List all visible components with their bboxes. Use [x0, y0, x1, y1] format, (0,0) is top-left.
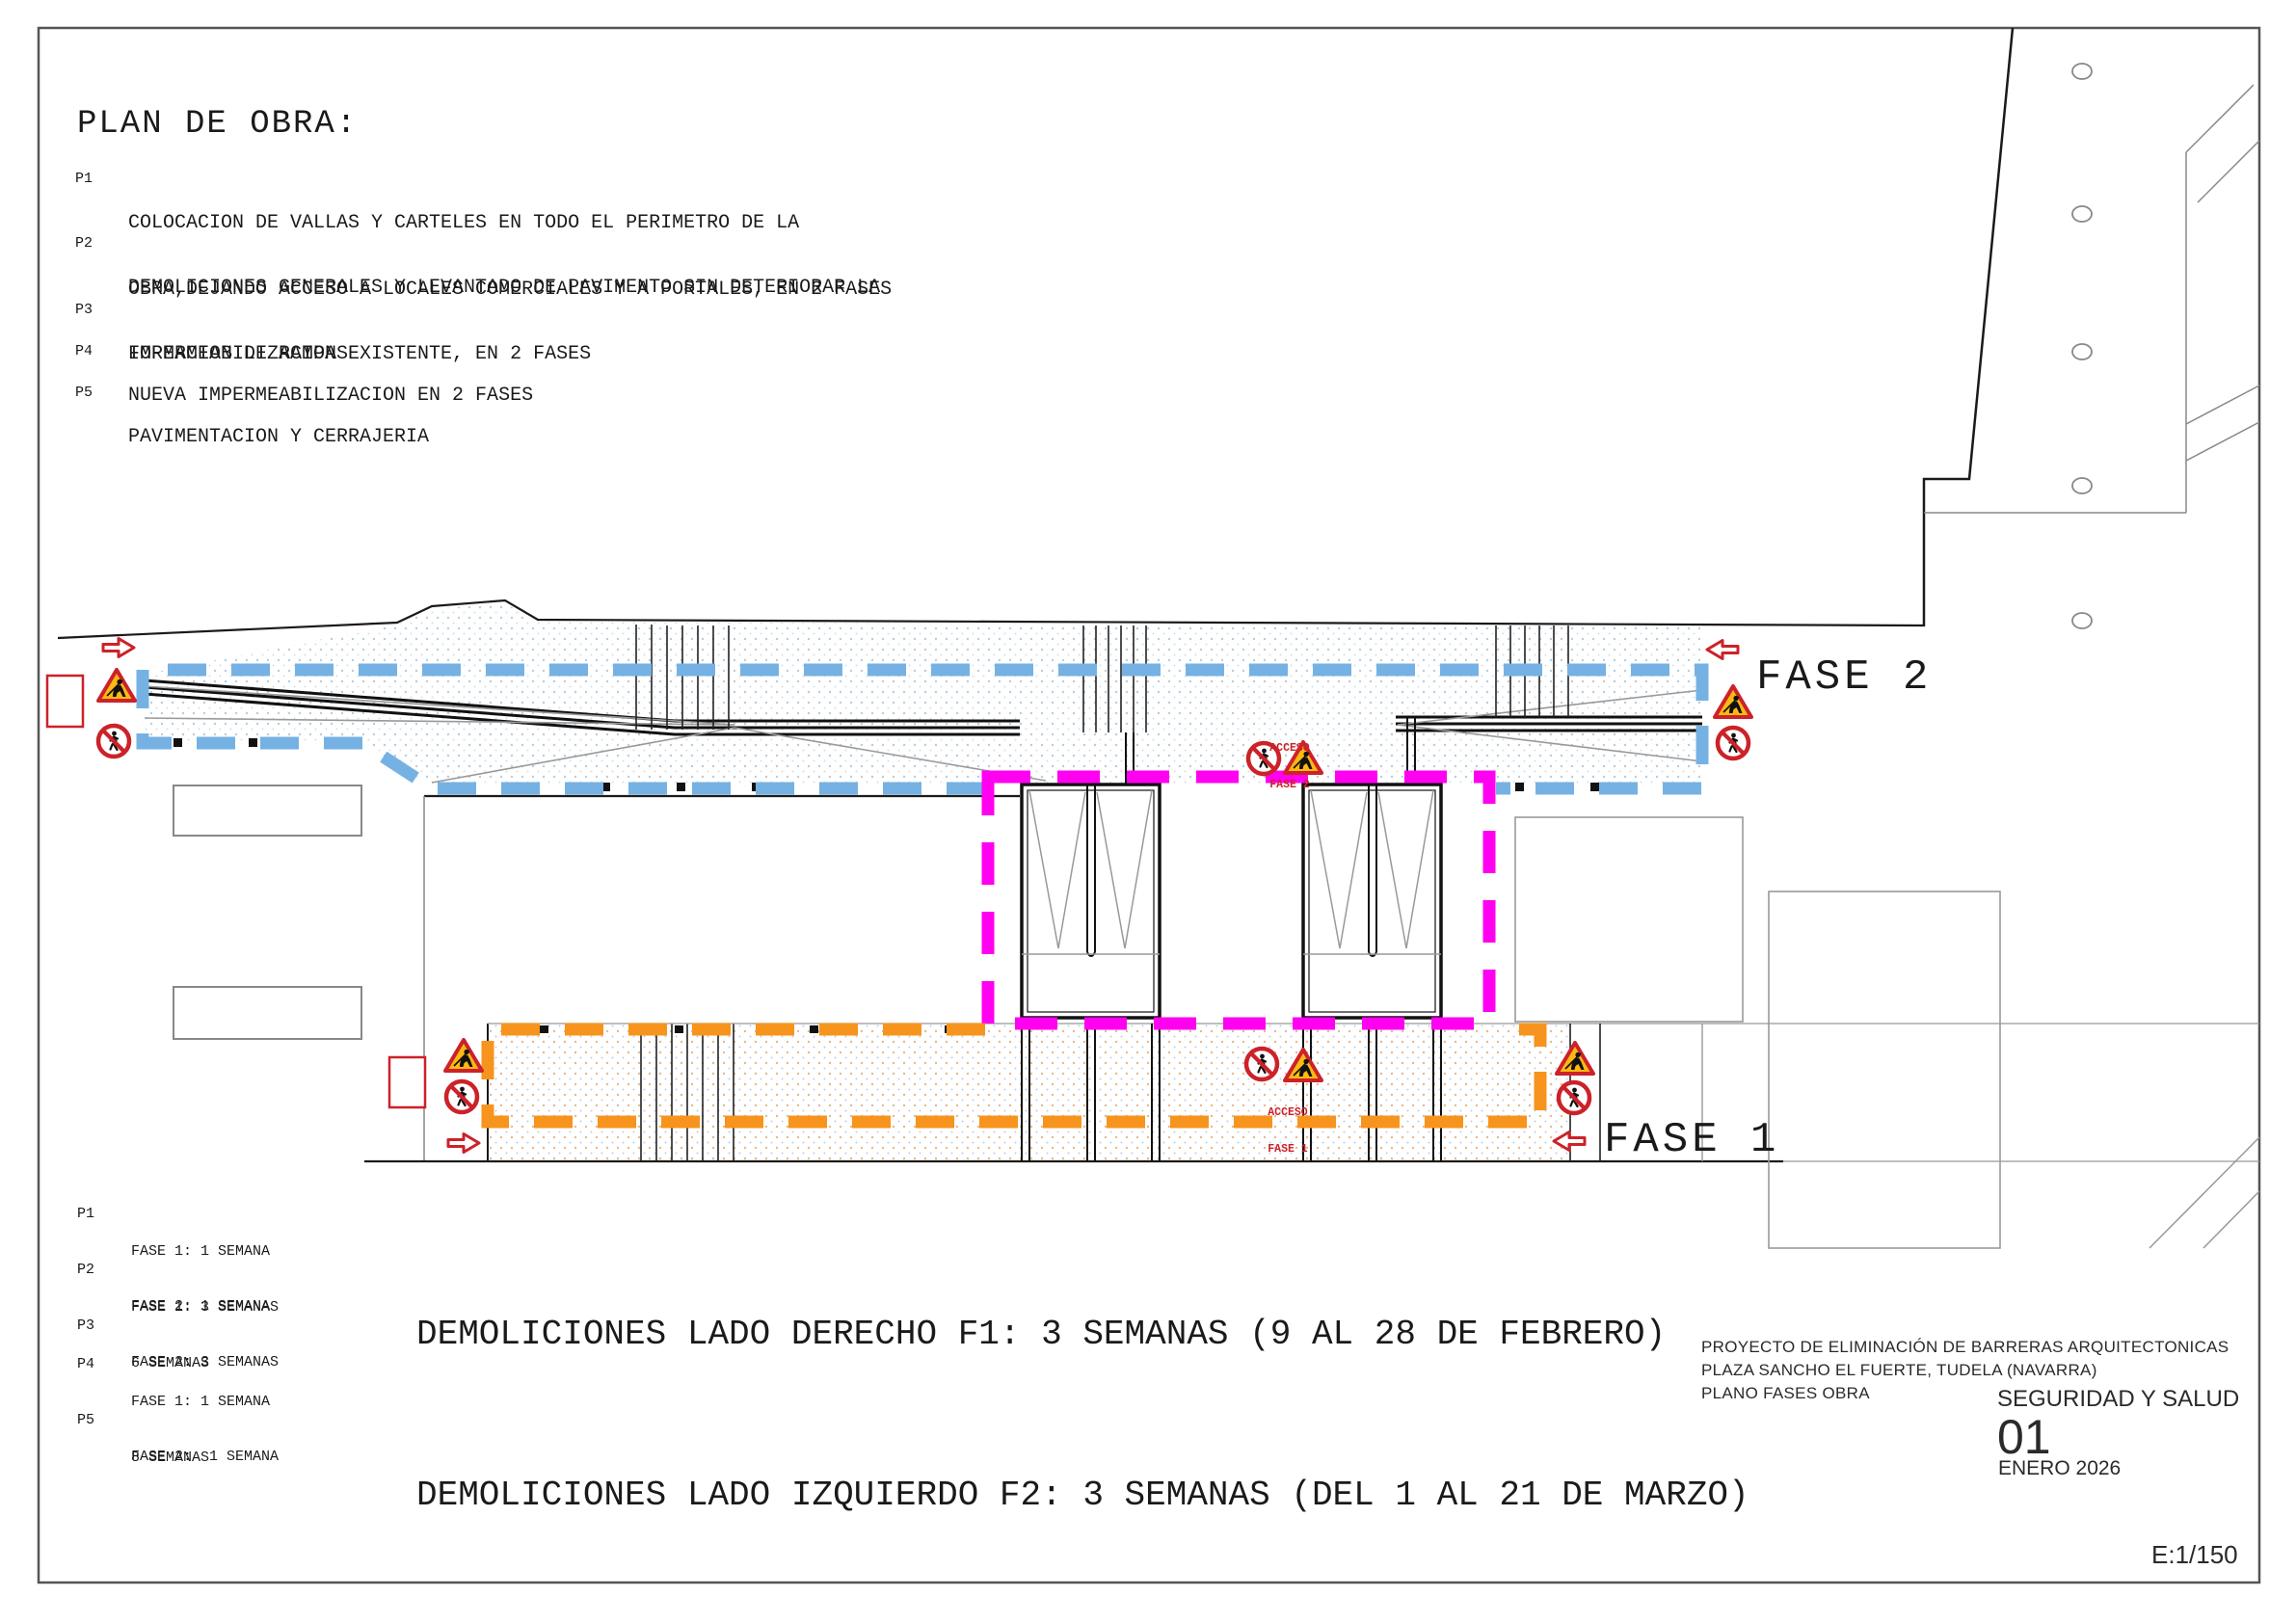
work-plan-item-id: P1 — [75, 171, 93, 187]
page-title: PLAN DE OBRA: — [77, 106, 358, 143]
direction-arrow-icon — [103, 639, 134, 657]
work-plan-item-id: P3 — [75, 302, 93, 318]
building-lower-right — [1769, 891, 2000, 1248]
stairwell-right — [1303, 785, 1441, 1018]
schedule-text: DEMOLICIONES LADO DERECHO F1: 3 SEMANAS … — [416, 1201, 1874, 1623]
acceso-fase2-label: ACCESO FASE 2 — [1249, 719, 1330, 804]
roadworks-icon — [1715, 686, 1751, 717]
sheet-date: ENERO 2026 — [1998, 1457, 2121, 1480]
project-title-line2: PLAZA SANCHO EL FUERTE, TUDELA (NAVARRA) — [1701, 1361, 2097, 1380]
planter-left-lower — [174, 987, 361, 1039]
no-pedestrians-icon — [446, 1081, 477, 1112]
duration-item-id: P5 — [77, 1412, 94, 1428]
site-hut-fase1 — [389, 1057, 425, 1107]
column-circles — [2072, 64, 2092, 628]
duration-item-id: P4 — [77, 1356, 94, 1372]
no-pedestrians-icon — [1246, 1049, 1277, 1079]
no-pedestrians-icon — [1718, 728, 1749, 758]
no-pedestrians-icon — [98, 726, 129, 757]
work-plan-item-id: P5 — [75, 385, 93, 401]
schedule-line: DEMOLICIONES LADO IZQUIERDO F2: 3 SEMANA… — [416, 1469, 1874, 1523]
work-plan-item-desc: PAVIMENTACION Y CERRAJERIA — [128, 382, 429, 470]
roadworks-icon — [445, 1040, 482, 1071]
schedule-line: DEMOLICIONES LADO DERECHO F1: 3 SEMANAS … — [416, 1308, 1874, 1362]
fase2-label: FASE 2 — [1756, 653, 1932, 702]
corner-diagonals — [2149, 1137, 2259, 1248]
plan-name: PLANO FASES OBRA — [1701, 1384, 1870, 1403]
planter-left-upper — [174, 785, 361, 836]
duration-item-id: P2 — [77, 1262, 94, 1278]
drawing-scale: E:1/150 — [2151, 1540, 2238, 1570]
duration-item-lines: 8 SEMANAS — [131, 1412, 209, 1485]
direction-arrow-icon — [1707, 641, 1738, 659]
project-title-line1: PROYECTO DE ELIMINACIÓN DE BARRERAS ARQU… — [1701, 1338, 2229, 1357]
site-hut-fase2 — [47, 676, 83, 727]
duration-item-id: P3 — [77, 1317, 94, 1334]
stairwell-left — [1022, 785, 1160, 1018]
building-upper-right — [1924, 28, 2259, 628]
no-pedestrians-icon — [1559, 1082, 1589, 1113]
roadworks-icon — [98, 670, 135, 701]
fase1-label: FASE 1 — [1604, 1116, 1779, 1164]
direction-arrow-icon — [448, 1134, 479, 1153]
work-plan-item-id: P2 — [75, 235, 93, 252]
acceso-fase1-label: ACCESO FASE 1 — [1247, 1083, 1328, 1168]
duration-item-id: P1 — [77, 1206, 94, 1222]
drawing-sheet: PLAN DE OBRA: P1 COLOCACION DE VALLAS Y … — [0, 0, 2296, 1623]
planter-right — [1515, 817, 1743, 1022]
work-plan-item-id: P4 — [75, 343, 93, 359]
